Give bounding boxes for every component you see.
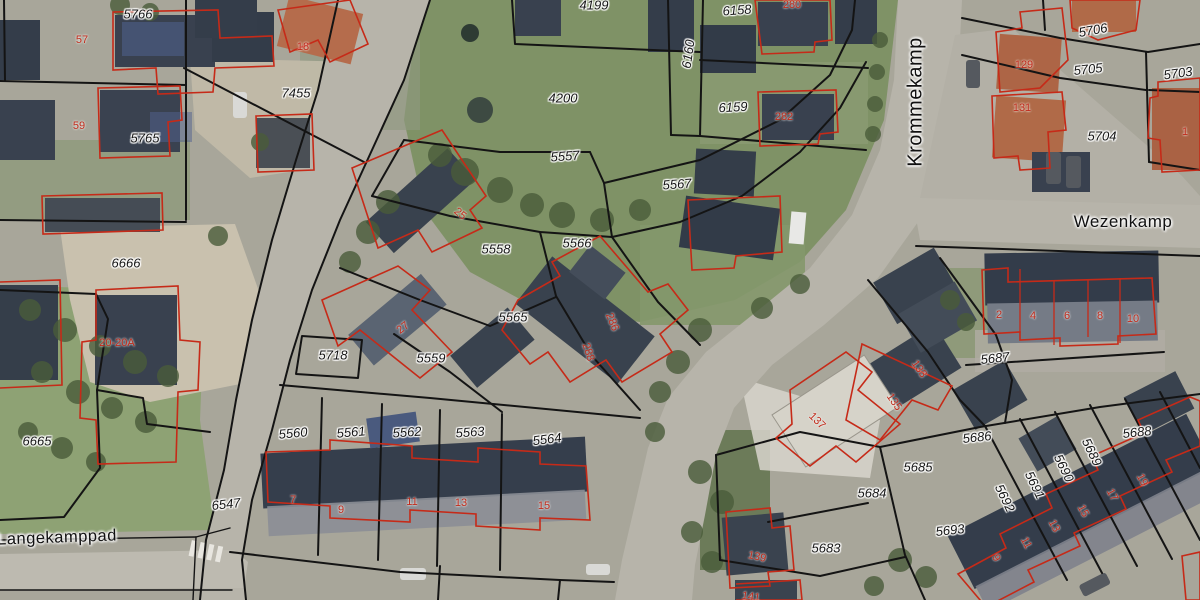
aerial-map bbox=[0, 0, 1200, 600]
map-canvas[interactable]: KrommekampWezenkampLangekamppad576657657… bbox=[0, 0, 1200, 600]
